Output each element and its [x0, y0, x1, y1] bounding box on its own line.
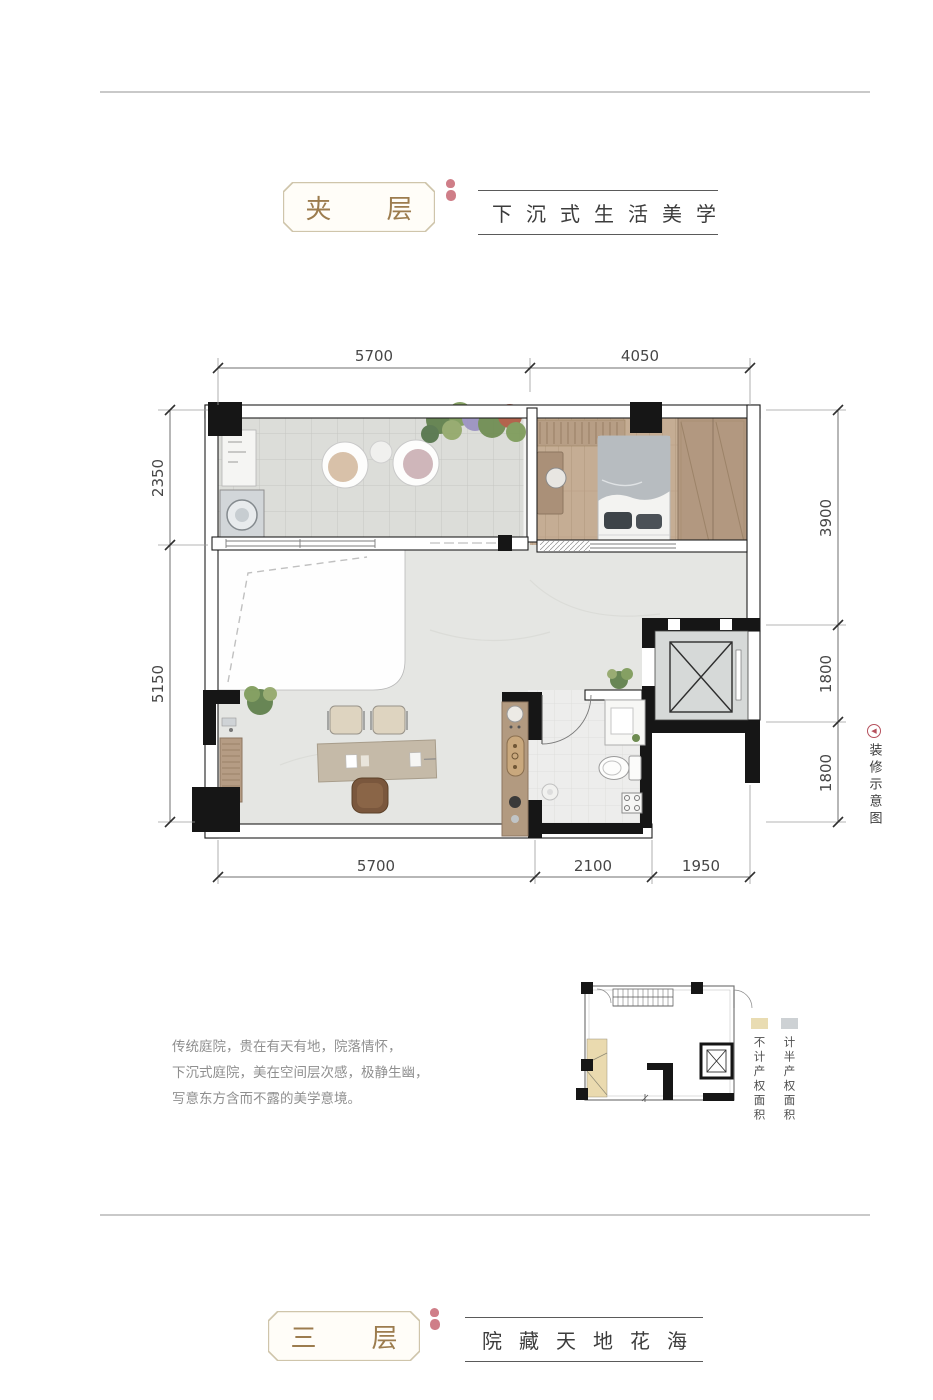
legend-swatch-gray	[781, 1018, 798, 1029]
vanity	[502, 702, 528, 836]
column	[192, 787, 240, 832]
decor-note: ◀ 装修示意图	[864, 724, 884, 828]
dim-bottom-1: 5700	[357, 857, 395, 875]
subtitle-top: 下沉式生活美学	[478, 190, 718, 235]
dim-right-2: 1800	[817, 655, 835, 693]
legend-item: 计半产权面积	[781, 1018, 798, 1123]
flyer-page: 夹层 下沉式生活美学	[0, 0, 933, 1400]
dim-left-2: 5150	[149, 665, 167, 703]
dim-top-2: 4050	[621, 347, 659, 365]
description-text: 传统庭院，贵在有天有地，院落情怀， 下沉式庭院，美在空间层次感，极静生幽， 写意…	[172, 1034, 502, 1112]
floor-label-box-bottom: 三层	[268, 1311, 420, 1361]
office-chair	[352, 778, 388, 813]
description-line: 下沉式庭院，美在空间层次感，极静生幽，	[172, 1060, 502, 1086]
dim-top-1: 5700	[355, 347, 393, 365]
dim-left-1: 2350	[149, 459, 167, 497]
legend-label: 不计产权面积	[752, 1036, 768, 1123]
elevator	[655, 631, 748, 720]
study-desk	[317, 740, 436, 782]
red-seal-icon	[444, 179, 457, 205]
decor-note-label: 装修示意图	[865, 743, 884, 828]
top-divider	[100, 91, 870, 93]
description-line: 传统庭院，贵在有天有地，院落情怀，	[172, 1034, 502, 1060]
floor-label-bottom: 三层	[268, 1311, 420, 1361]
floor-label-top: 夹层	[283, 182, 435, 232]
void-area	[212, 548, 405, 690]
bottom-divider	[100, 1214, 870, 1216]
legend-item: 不计产权面积	[751, 1018, 768, 1123]
floor-plan: 5700 4050 5700 2100 1950 2350 5150	[130, 330, 900, 890]
washbasin	[605, 700, 645, 745]
toilet	[599, 756, 641, 780]
threshold-hatch	[540, 541, 590, 551]
bed	[598, 436, 670, 546]
dim-bottom-2: 2100	[574, 857, 612, 875]
dim-right-3: 1800	[817, 754, 835, 792]
floor-label-box-top: 夹层	[283, 182, 435, 232]
column	[630, 402, 662, 433]
key-plan	[570, 975, 780, 1135]
column	[208, 402, 242, 436]
area-legend: 不计产权面积 计半产权面积	[751, 1018, 798, 1123]
legend-swatch-beige	[751, 1018, 768, 1029]
circled-arrow-icon: ◀	[867, 724, 881, 738]
bedroom-desk	[537, 452, 566, 514]
red-seal-icon	[428, 1308, 441, 1334]
description-line: 写意东方含而不露的美学意境。	[172, 1086, 502, 1112]
shower-drain	[622, 793, 642, 813]
key-plan-entry-door	[734, 990, 752, 1008]
washing-machine	[220, 490, 264, 540]
elevator-wall	[642, 618, 760, 631]
subtitle-bottom: 院藏天地花海	[465, 1317, 703, 1362]
wardrobe	[678, 418, 747, 546]
dim-bottom-3: 1950	[682, 857, 720, 875]
side-table	[370, 441, 392, 463]
key-plan-elevator	[701, 1044, 732, 1078]
terrace-cabinet	[222, 430, 256, 486]
dim-right-1: 3900	[817, 499, 835, 537]
legend-label: 计半产权面积	[782, 1036, 798, 1123]
